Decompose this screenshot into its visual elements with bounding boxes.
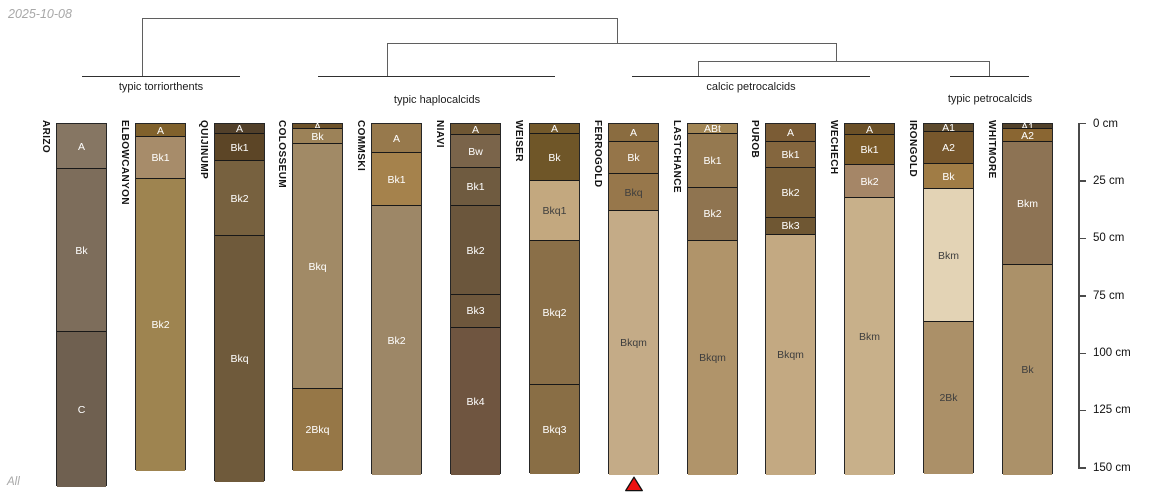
horizon-label: A [136,126,185,137]
horizon-label: 2Bk [924,393,973,404]
horizon-label: A [766,128,815,139]
horizon: Bkq3 [530,384,579,474]
horizon: Bk1 [766,141,815,169]
horizon-label: Bk1 [136,153,185,164]
horizon-label: Bkq3 [530,424,579,435]
depth-axis-tick-label: 100 cm [1093,347,1131,359]
profile-column-quijinump: ABk1Bk2Bkq [214,123,265,481]
horizon-label: Bkq [293,261,342,272]
group-label: typic petrocalcids [948,93,1032,105]
depth-axis-tick-label: 150 cm [1093,462,1131,474]
profile-name-label: WEISER [513,120,524,162]
dendrogram-link-v [989,61,990,76]
profile-column-wechech: ABk1Bk2Bkm [844,123,895,474]
horizon: Bk2 [451,205,500,295]
horizon-label: Bk4 [451,396,500,407]
horizon: Bkm [1003,141,1052,265]
horizon: Bk3 [451,294,500,329]
horizon: Bkq2 [530,240,579,386]
profile-name-label: COLOSSEUM [276,120,287,188]
depth-axis-tick [1078,123,1086,124]
horizon-label: Bk2 [215,194,264,205]
horizon-label: Bk2 [766,188,815,199]
horizon-label: Bkm [924,250,973,261]
profile-name-label: ARIZO [40,120,51,153]
profile-name-label: LASTCHANCE [671,120,682,193]
horizon: Bk1 [215,133,264,162]
dendrogram-link-v [836,43,837,61]
profile-name-label: COMMSKI [355,120,366,171]
horizon-label: Bk1 [215,143,264,154]
depth-axis-tick [1078,295,1086,296]
horizon-label: A [609,128,658,139]
horizon-label: Bk2 [688,209,737,220]
horizon-label: Bkqm [688,353,737,364]
profile-column-colosseum: ABkBkq2Bkq [292,123,343,470]
footer-label: All [7,476,20,488]
horizon: Bkqm [766,234,815,475]
horizon: C [57,331,106,486]
horizon-label: A [372,134,421,145]
horizon-label: Bkq [609,187,658,198]
profile-name-label: FERROGOLD [592,120,603,188]
group-label: typic torriorthents [119,81,203,93]
horizon: Bkq [215,235,264,482]
profile-column-lastchance: ABtBk1Bk2Bkqm [687,123,738,474]
horizon-label: Bk [293,132,342,143]
profile-column-niavi: ABwBk1Bk2Bk3Bk4 [450,123,501,474]
horizon: Bkm [924,188,973,323]
horizon: Bk1 [372,152,421,206]
horizon-label: Bkm [845,331,894,342]
horizon-label: Bk [1003,365,1052,376]
horizon: Bk1 [451,167,500,206]
group-leaf-line [318,76,555,77]
horizon-label: Bkqm [609,338,658,349]
horizon-label: 2Bkq [293,424,342,435]
group-leaf-line [950,76,1029,77]
profile-column-purob: ABk1Bk2Bk3Bkqm [765,123,816,474]
depth-axis-tick-label: 125 cm [1093,404,1131,416]
horizon: Bk [530,133,579,182]
dendrogram-link-v [617,18,618,43]
horizon-label: A2 [1003,131,1052,142]
dendrogram-link-v [142,18,143,76]
depth-axis-tick-label: 75 cm [1093,290,1124,302]
depth-axis-tick [1078,467,1086,468]
profile-column-weiser: ABkBkq1Bkq2Bkq3 [529,123,580,473]
horizon: A2 [924,131,973,165]
horizon: Bkqm [609,210,658,475]
horizon-label: Bk2 [451,245,500,256]
horizon: Bk [1003,264,1052,476]
dendrogram-link-h [142,18,617,19]
horizon: Bkm [845,197,894,475]
date-label: 2025-10-08 [8,7,72,21]
horizon-label: Bkq2 [530,308,579,319]
horizon-label: Bk [609,153,658,164]
horizon: Bk2 [215,160,264,236]
group-leaf-line [632,76,870,77]
horizon-label: Bk1 [688,156,737,167]
horizon: Bk1 [688,133,737,188]
dendrogram-link-h [387,43,836,44]
depth-axis-tick [1078,353,1086,354]
profile-column-arizo: ABkC [56,123,107,486]
dendrogram-link-v [698,61,699,76]
profile-column-elbowcanyon: ABk1Bk2 [135,123,186,470]
profile-column-irongold: A1A2BkBkm2Bk [923,123,974,473]
profile-name-label: PUROB [749,120,760,158]
horizon: 2Bkq [293,388,342,471]
horizon: Bkq1 [530,180,579,241]
horizon: Bk1 [136,136,185,179]
horizon-label: Bk [530,152,579,163]
horizon-label: Bkm [1003,198,1052,209]
horizon-label: Bk [924,171,973,182]
horizon: Bk1 [845,134,894,165]
depth-axis-tick-label: 50 cm [1093,232,1124,244]
group-label: typic haplocalcids [394,94,480,106]
horizon-label: Bk1 [372,175,421,186]
horizon: Bk [57,168,106,332]
horizon: Bk2 [845,164,894,199]
horizon: Bk [609,141,658,175]
profile-column-ferrogold: ABkBkqBkqm [608,123,659,474]
horizon: 2Bk [924,321,973,474]
horizon-label: Bk2 [136,319,185,330]
horizon: Bk4 [451,327,500,475]
horizon: Bk2 [136,178,185,471]
profile-name-label: ELBOWCANYON [119,120,130,205]
profile-column-whitmore: A1A2BkmBk [1002,123,1053,474]
horizon: Bkq [609,173,658,211]
horizon-label: Bk [57,246,106,257]
horizon: Bk [924,163,973,190]
horizon-label: Bk2 [372,335,421,346]
horizon: Bk2 [688,187,737,241]
horizon-label: Bk3 [451,306,500,317]
group-label: calcic petrocalcids [706,81,795,93]
horizon-label: A2 [924,143,973,154]
profile-name-label: WECHECH [828,120,839,174]
profile-name-label: NIAVI [434,120,445,148]
depth-axis-tick-label: 25 cm [1093,175,1124,187]
horizon: Bk3 [766,217,815,236]
group-leaf-line [82,76,240,77]
depth-axis-tick [1078,180,1086,181]
horizon-label: Bk2 [845,176,894,187]
horizon-label: C [57,404,106,415]
dendrogram-link-h [698,61,989,62]
horizon: Bkqm [688,240,737,476]
horizon: A [372,124,421,154]
horizon-label: Bw [451,147,500,158]
soil-profile-dendrogram-chart: 2025-10-08 typic torriorthentstypic hapl… [0,0,1150,500]
depth-axis-tick-label: 0 cm [1093,118,1118,130]
horizon: A [766,124,815,142]
profile-name-label: WHITMORE [986,120,997,179]
horizon-label: Bk3 [766,221,815,232]
horizon-label: Bk1 [766,150,815,161]
horizon-label: Bkq [215,354,264,365]
horizon-label: Bk1 [451,182,500,193]
horizon-label: Bk1 [845,145,894,156]
marker-triangle-icon [624,476,644,492]
profile-name-label: IRONGOLD [907,120,918,177]
horizon-label: A [57,142,106,153]
dendrogram-link-v [387,43,388,76]
horizon: A [609,124,658,142]
horizon: Bk2 [766,167,815,218]
horizon: Bkq [293,143,342,389]
horizon-label: Bkq1 [530,206,579,217]
profile-name-label: QUIJINUMP [198,120,209,179]
horizon-label: Bkqm [766,350,815,361]
depth-axis-tick [1078,410,1086,411]
horizon: Bk2 [372,205,421,475]
horizon: A [57,124,106,170]
horizon: Bw [451,134,500,169]
depth-axis-tick [1078,238,1086,239]
profile-column-commski: ABk1Bk2 [371,123,422,474]
